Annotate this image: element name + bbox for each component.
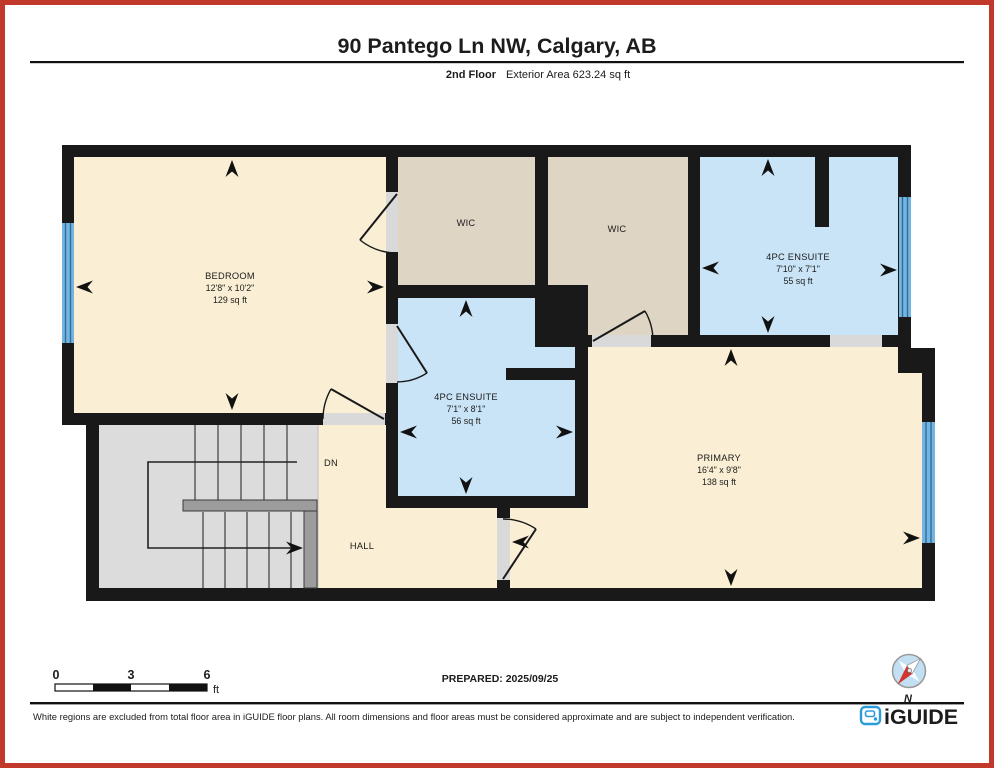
iguide-logo: iGUIDE (861, 705, 958, 729)
wall-ensuite-top-left (688, 145, 700, 347)
ensuite-middle-name: 4PC ENSUITE (434, 392, 498, 402)
floor-plan-canvas: 90 Pantego Ln NW, Calgary, AB 2nd Floor … (0, 0, 994, 768)
hall-name: HALL (350, 541, 374, 551)
scale-tick-6: 6 (204, 668, 211, 682)
iguide-brand-text: iGUIDE (884, 705, 958, 729)
primary-area: 138 sq ft (702, 477, 737, 487)
scale-bar: 0 3 6 ft (53, 668, 220, 696)
ensuite-middle-area: 56 sq ft (451, 416, 481, 426)
stair-railing-vertical (304, 511, 317, 588)
window-bedroom (62, 223, 74, 343)
ensuite-top-area: 55 sq ft (783, 276, 813, 286)
wall-ensuite-mid-stub (506, 368, 588, 380)
floor-plan-page: 90 Pantego Ln NW, Calgary, AB 2nd Floor … (0, 0, 994, 768)
compass: N (893, 655, 926, 706)
exterior-area-label: Exterior Area 623.24 sq ft (506, 69, 630, 81)
page-title: 90 Pantego Ln NW, Calgary, AB (338, 34, 657, 58)
floor-plan-drawing: BEDROOM 12'8" x 10'2" 129 sq ft WIC WIC … (62, 145, 935, 601)
scale-unit: ft (213, 684, 219, 696)
wic-left-name: WIC (457, 218, 476, 228)
door-sill-ensuite-mid (386, 324, 398, 383)
stair-railing-horizontal (183, 500, 317, 511)
door-sill-ensuite-top (830, 335, 882, 347)
room-ensuite-top (700, 157, 898, 335)
prepared-date: PREPARED: 2025/09/25 (442, 673, 559, 685)
stairs-dn-label: DN (324, 458, 338, 468)
primary-name: PRIMARY (697, 453, 741, 463)
title-divider (30, 61, 964, 63)
primary-dimensions: 16'4" x 9'8" (697, 465, 741, 475)
floor-label: 2nd Floor (446, 69, 497, 81)
bedroom-dimensions: 12'8" x 10'2" (206, 283, 255, 293)
wall-wic-divider (535, 145, 548, 290)
footer-divider (30, 702, 964, 704)
scale-tick-3: 3 (128, 668, 135, 682)
wic-right-name: WIC (608, 224, 627, 234)
bedroom-name: BEDROOM (205, 271, 255, 281)
wall-ensuite-mid-top (386, 285, 588, 298)
wall-ensuite-mid-right (575, 285, 588, 508)
window-ensuite-top (899, 197, 911, 317)
wall-ensuite-top-stub (815, 155, 829, 227)
ensuite-top-name: 4PC ENSUITE (766, 252, 830, 262)
scale-tick-0: 0 (53, 668, 60, 682)
bedroom-area: 129 sq ft (213, 295, 248, 305)
ensuite-top-dimensions: 7'10" x 7'1" (776, 264, 820, 274)
ensuite-middle-dimensions: 7'1" x 8'1" (447, 404, 486, 414)
footer-disclaimer: White regions are excluded from total fl… (33, 711, 795, 722)
iguide-camera-icon (861, 707, 880, 724)
window-primary (922, 422, 935, 543)
wall-ensuite-mid-bottom (386, 496, 588, 508)
